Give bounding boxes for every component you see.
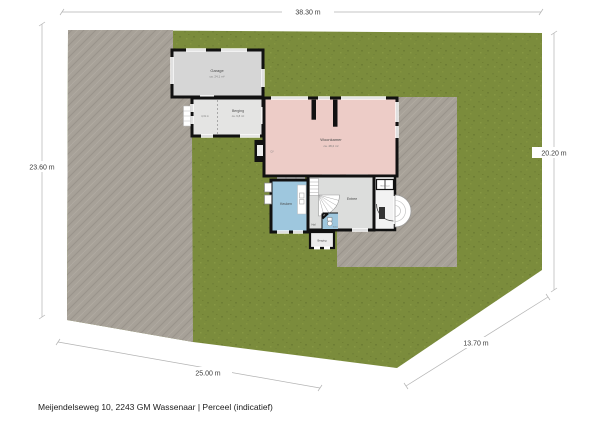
dimension-left: 23.60 m	[29, 165, 54, 172]
living-room: CV Woonkamer ca. 48,2 m²	[255, 96, 399, 177]
kitchen-label: Keuken	[280, 202, 292, 206]
front-door-leaf	[379, 207, 385, 219]
meter-closet: Meterkast	[377, 180, 394, 190]
rear-storage-label: Berging	[318, 239, 327, 243]
toilet-label: Toilet	[332, 226, 337, 229]
garage-area: ca. 24,1 m²	[209, 75, 224, 79]
fireplace	[255, 140, 266, 162]
kitchen-counter	[298, 185, 307, 214]
kitchen-room: Keuken	[265, 180, 309, 234]
dimension-diagonal: 13.70 m	[463, 341, 488, 348]
meter-closet-label: Meterkast	[380, 185, 390, 188]
living-room-area: ca. 48,2 m²	[323, 144, 338, 148]
storage-room: 4,31 m Berging ca. 9,8 m²	[184, 98, 265, 138]
hall-label: Hal	[312, 223, 316, 227]
site-plan: Garage ca. 24,1 m² 4,31 m Berging ca. 9,…	[0, 0, 600, 424]
dimension-right: 20.20 m	[541, 151, 566, 158]
storage-annex-label: 4,31 m	[201, 115, 209, 118]
entry-windows	[352, 228, 368, 231]
dimension-bottom: 25.00 m	[195, 371, 220, 378]
rear-storage-room: Berging	[310, 232, 334, 249]
entry-room: Entree	[308, 176, 374, 232]
dimension-top: 38.30 m	[295, 10, 320, 17]
storage-outside-steps	[184, 106, 191, 126]
cv-label: CV	[270, 151, 274, 154]
living-room-label: Woonkamer	[320, 137, 342, 142]
storage-label: Berging	[232, 109, 244, 113]
toilet-icon	[327, 218, 332, 226]
toilet-room: Toilet	[323, 214, 339, 230]
storage-area: ca. 9,8 m²	[232, 114, 245, 118]
garage-room: Garage ca. 24,1 m²	[170, 48, 264, 98]
wall-stub	[312, 100, 317, 120]
wall-stub	[333, 100, 338, 127]
site-plan-page: Garage ca. 24,1 m² 4,31 m Berging ca. 9,…	[0, 0, 600, 424]
caption: Meijendelseweg 10, 2243 GM Wassenaar | P…	[38, 402, 273, 412]
garage-label: Garage	[210, 68, 224, 73]
entry-label: Entree	[347, 197, 357, 201]
